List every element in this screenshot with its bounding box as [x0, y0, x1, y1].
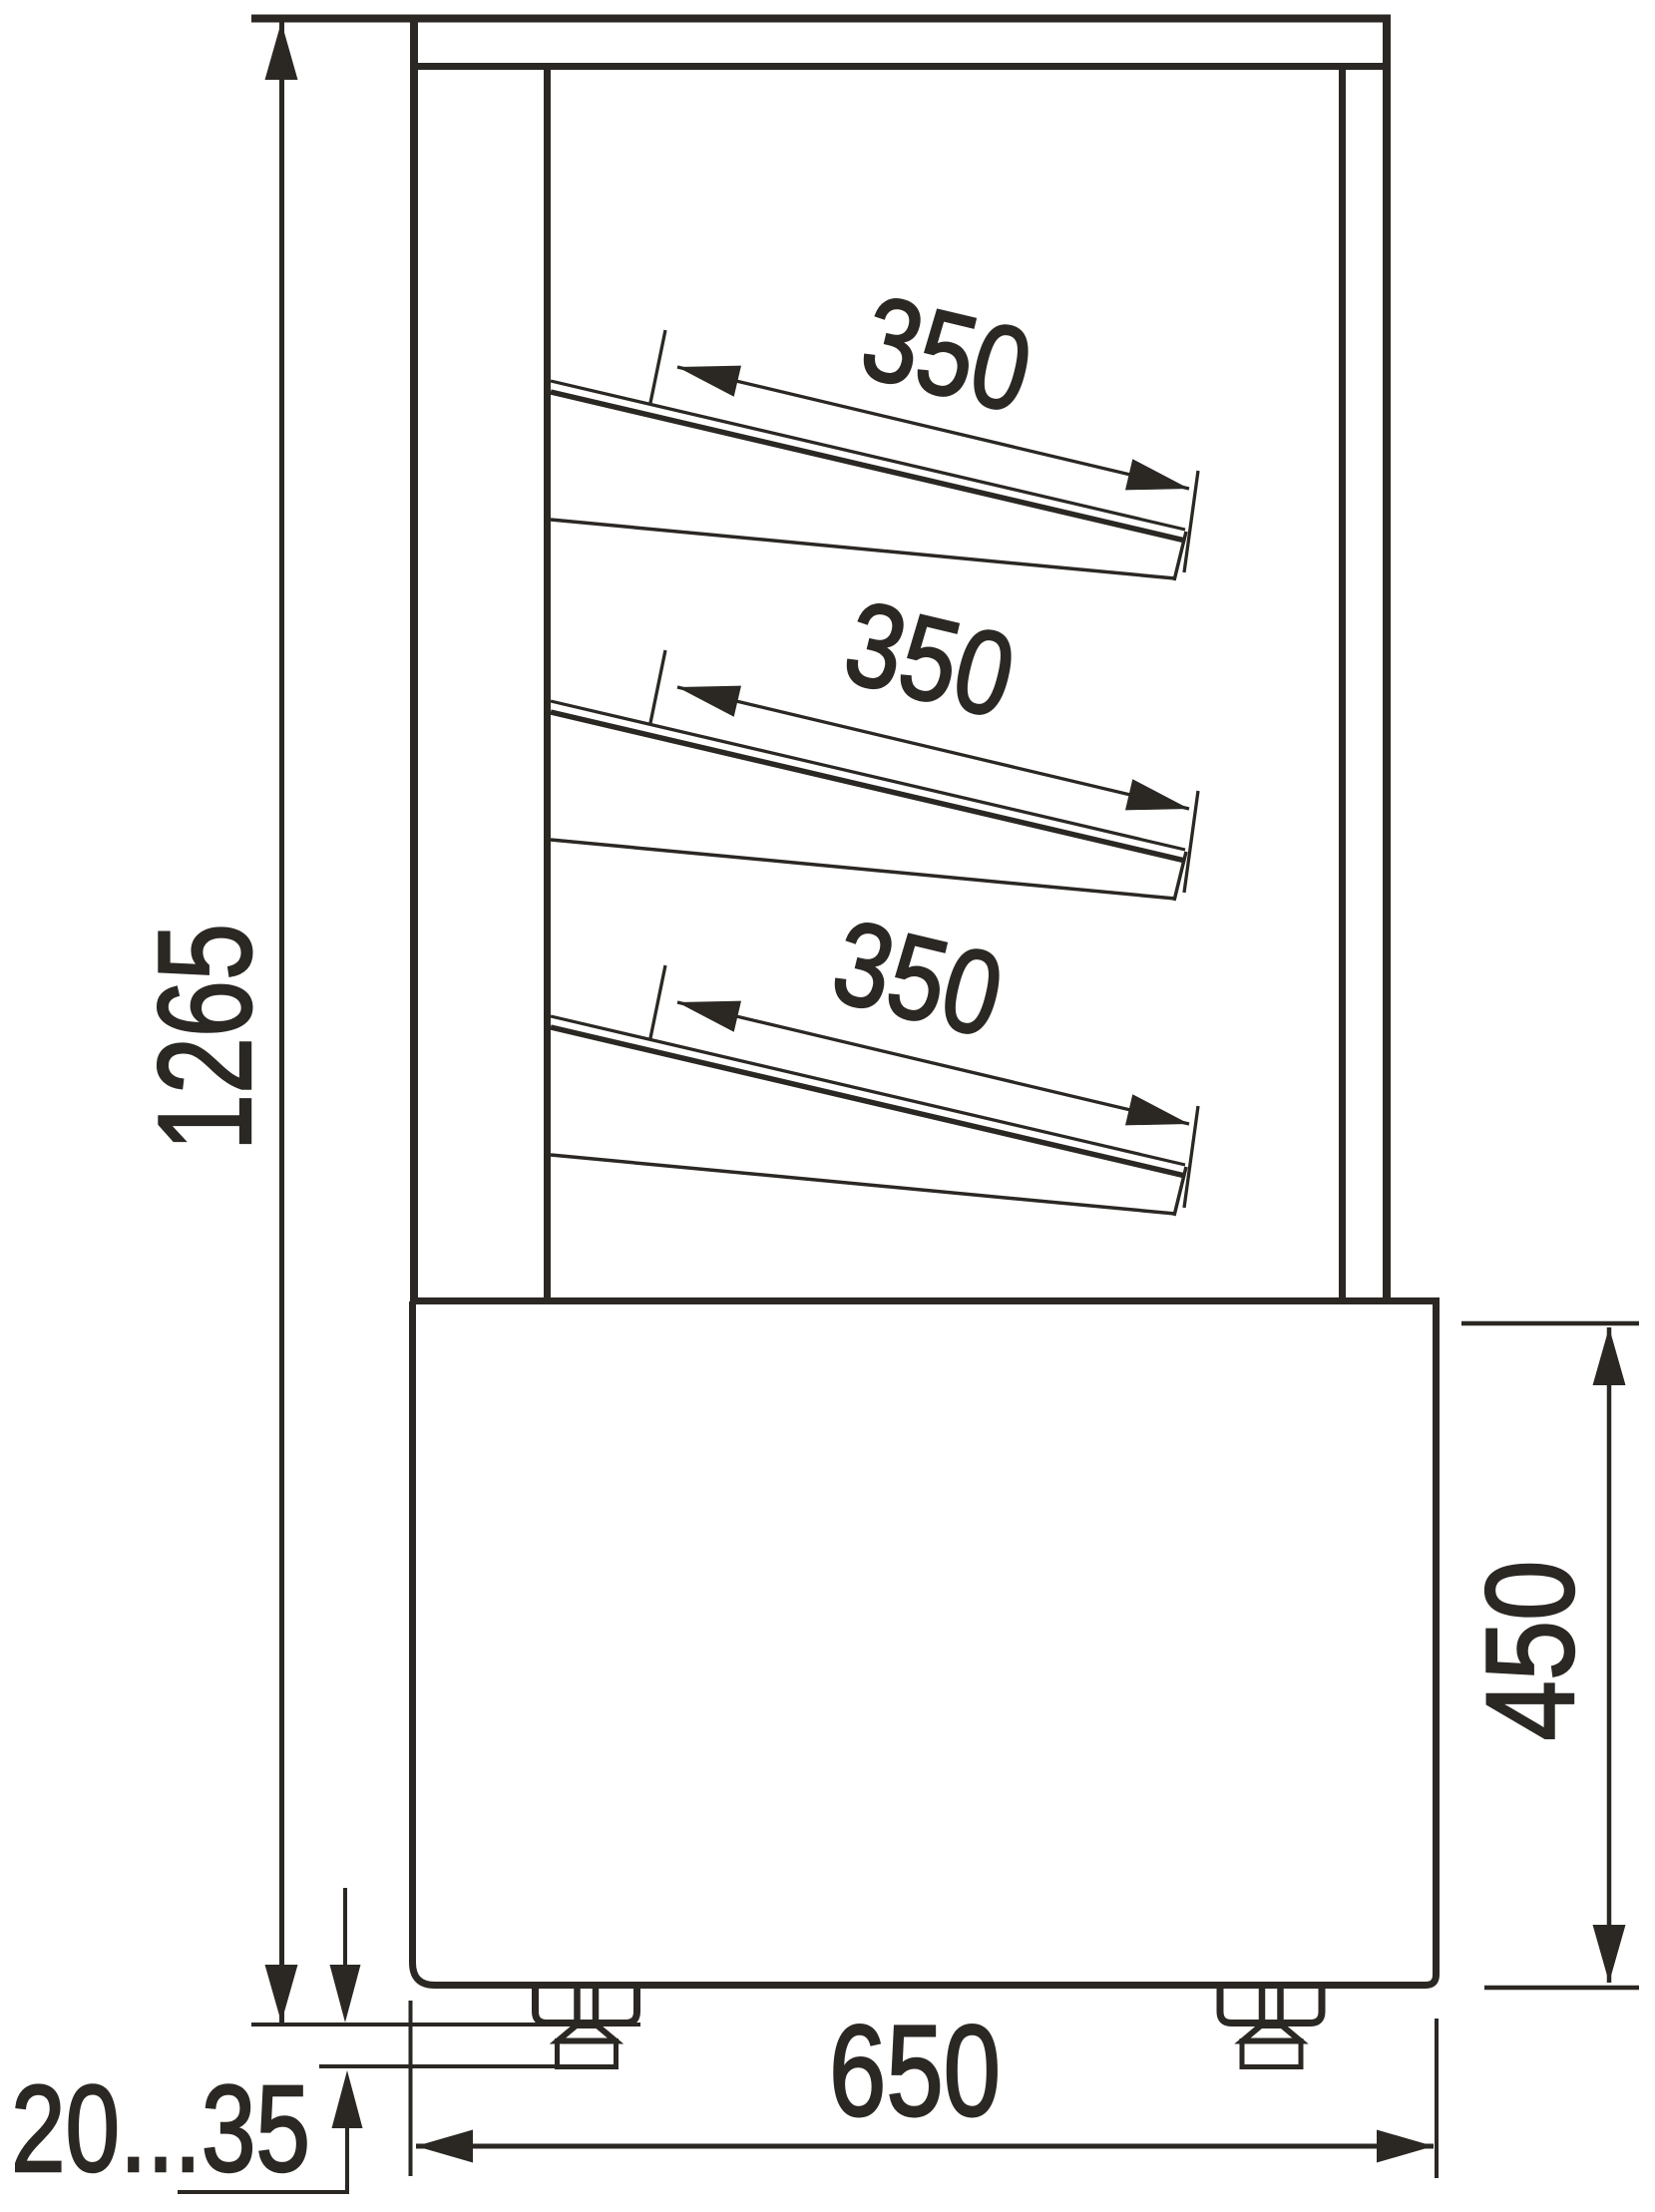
svg-text:20...35: 20...35 [11, 2061, 310, 2198]
svg-text:450: 450 [1461, 1561, 1600, 1741]
svg-text:650: 650 [829, 1998, 1001, 2143]
svg-text:1265: 1265 [132, 923, 279, 1151]
